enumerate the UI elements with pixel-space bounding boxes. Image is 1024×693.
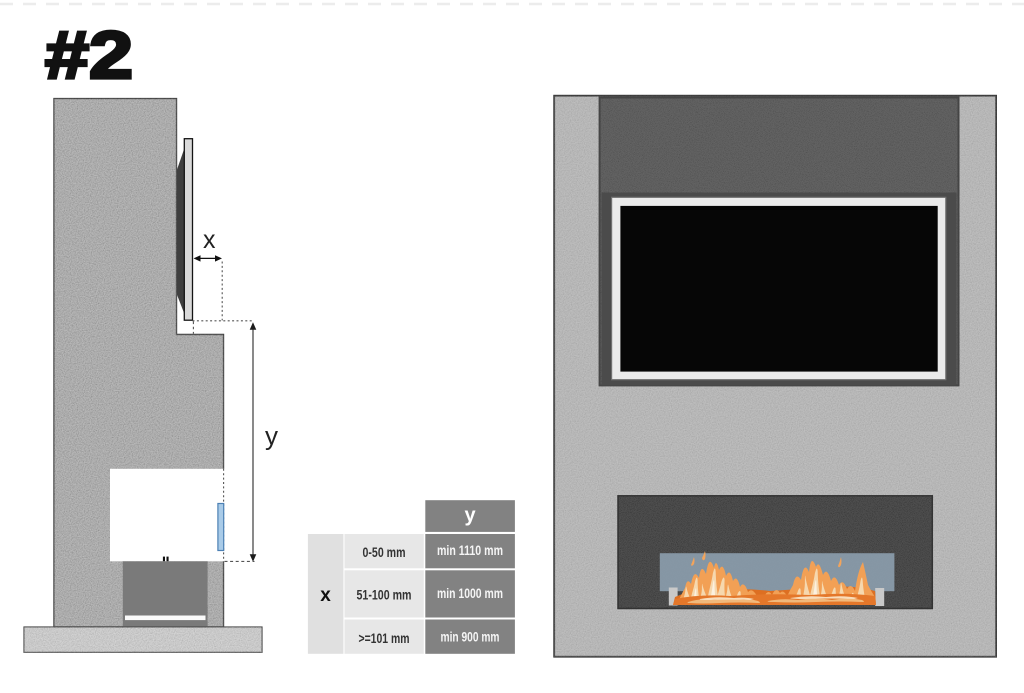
svg-text:0-50 mm: 0-50 mm [363, 544, 406, 560]
svg-text:x: x [203, 226, 216, 254]
svg-text:min 1110 mm: min 1110 mm [437, 542, 503, 558]
svg-text:min 1000 mm: min 1000 mm [437, 585, 503, 601]
svg-text:>=101 mm: >=101 mm [359, 630, 410, 646]
svg-text:min 900 mm: min 900 mm [441, 629, 500, 645]
svg-text:x: x [320, 585, 331, 606]
svg-text:#2: #2 [45, 18, 133, 93]
svg-text:51-100 mm: 51-100 mm [357, 587, 412, 603]
svg-text:y: y [265, 421, 278, 451]
svg-text:y: y [464, 505, 476, 527]
